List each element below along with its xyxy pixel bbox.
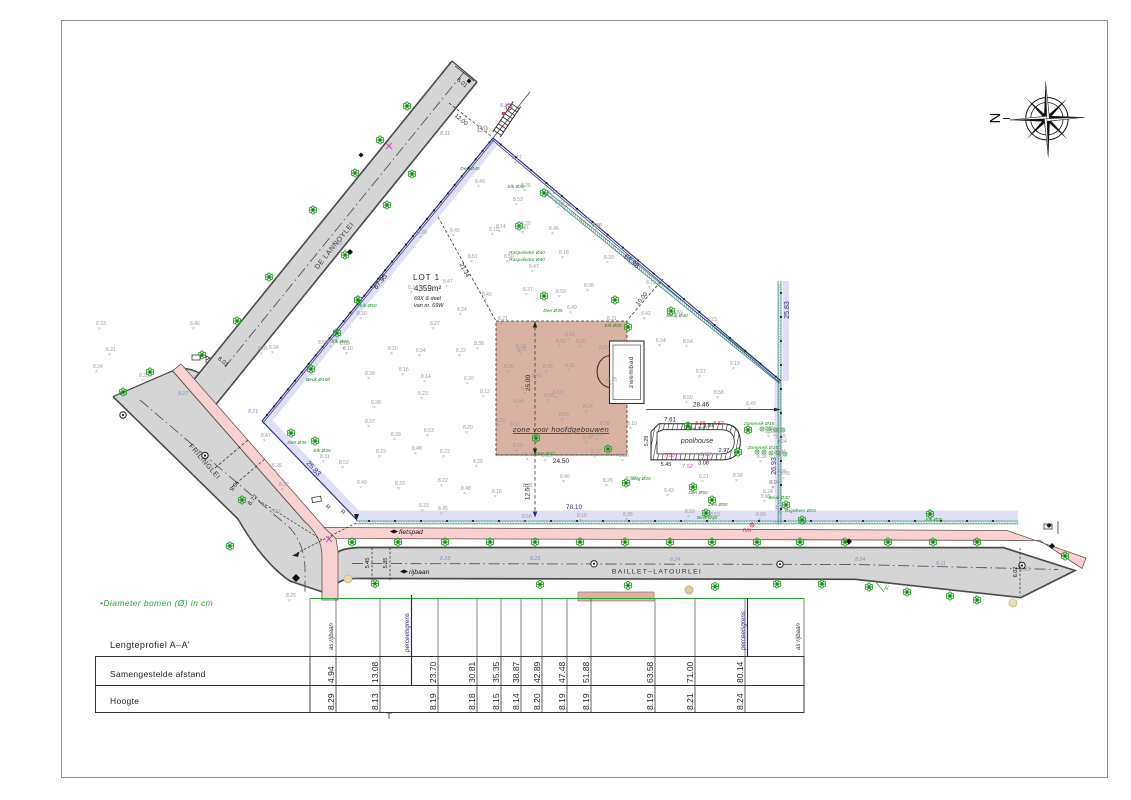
svg-text:42.89: 42.89: [532, 661, 542, 683]
svg-text:×: ×: [544, 458, 547, 464]
svg-text:×: ×: [390, 351, 393, 357]
svg-text:×: ×: [621, 458, 624, 464]
svg-text:×: ×: [329, 344, 332, 350]
svg-text:×: ×: [561, 255, 564, 261]
svg-text:×: ×: [452, 233, 455, 239]
svg-text:8.15: 8.15: [491, 693, 501, 710]
svg-text:Den Ø35: Den Ø35: [287, 440, 307, 446]
svg-text:×: ×: [491, 232, 494, 238]
svg-text:25.83: 25.83: [784, 301, 791, 319]
svg-text:×: ×: [550, 195, 553, 201]
svg-text:×: ×: [748, 406, 751, 412]
svg-text:×: ×: [582, 222, 585, 228]
svg-text:×: ×: [563, 208, 566, 214]
svg-text:8.22: 8.22: [332, 241, 342, 247]
svg-text:47.48: 47.48: [557, 661, 567, 683]
svg-text:hm: hm: [743, 528, 751, 534]
svg-text:as rijbaan: as rijbaan: [328, 623, 335, 650]
svg-text:×: ×: [569, 310, 572, 316]
svg-text:×: ×: [698, 374, 701, 380]
svg-text:×: ×: [767, 434, 770, 440]
svg-text:×: ×: [567, 368, 570, 374]
svg-text:2.97: 2.97: [719, 448, 730, 454]
svg-text:×: ×: [367, 376, 370, 382]
svg-text:poolhouse: poolhouse: [680, 438, 713, 445]
svg-text:78.10: 78.10: [566, 504, 583, 511]
svg-text:8.11: 8.11: [936, 561, 946, 567]
svg-text:35.35: 35.35: [491, 661, 501, 683]
svg-text:×: ×: [605, 483, 608, 489]
svg-text:N: N: [986, 113, 1003, 124]
svg-text:24.50: 24.50: [553, 458, 570, 465]
svg-text:Beuk Ø30: Beuk Ø30: [768, 495, 790, 501]
svg-text:×: ×: [609, 382, 612, 388]
svg-text:×: ×: [500, 321, 503, 327]
svg-text:×: ×: [458, 353, 461, 359]
svg-text:×: ×: [765, 494, 768, 500]
svg-text:×: ×: [593, 454, 596, 460]
svg-text:×: ×: [477, 184, 480, 190]
svg-text:×: ×: [561, 417, 564, 423]
svg-text:×: ×: [442, 454, 445, 460]
svg-text:4.94: 4.94: [326, 666, 336, 683]
svg-text:21.34: 21.34: [458, 262, 471, 279]
svg-text:5.29: 5.29: [644, 436, 650, 447]
svg-text:×: ×: [779, 474, 782, 480]
svg-text:×: ×: [414, 451, 417, 457]
svg-text:×: ×: [525, 292, 528, 298]
svg-text:×: ×: [494, 494, 497, 500]
svg-text:×: ×: [648, 285, 651, 291]
svg-text:×: ×: [523, 226, 526, 232]
svg-text:Den Ø50: Den Ø50: [688, 490, 708, 496]
svg-text:×: ×: [498, 229, 501, 235]
svg-text:×: ×: [518, 349, 521, 355]
svg-text:×: ×: [419, 235, 422, 241]
svg-text:13.08: 13.08: [370, 661, 380, 683]
svg-text:×: ×: [557, 205, 560, 211]
svg-text:38.87: 38.87: [511, 661, 521, 683]
svg-text:×: ×: [567, 337, 570, 343]
svg-text:×: ×: [778, 510, 781, 516]
svg-text:×: ×: [526, 457, 529, 463]
svg-text:×: ×: [95, 369, 98, 375]
svg-text:Raspvlinder Ø40: Raspvlinder Ø40: [509, 250, 545, 256]
svg-text:×: ×: [709, 322, 712, 328]
svg-text:×: ×: [373, 405, 376, 411]
svg-text:×: ×: [551, 231, 554, 237]
svg-text:×: ×: [712, 517, 715, 523]
svg-text:×: ×: [628, 481, 631, 487]
svg-text:8.19: 8.19: [557, 693, 567, 710]
svg-text:×: ×: [565, 432, 568, 438]
svg-text:×: ×: [525, 488, 528, 494]
svg-text:×: ×: [585, 440, 588, 446]
svg-text:71.00: 71.00: [685, 661, 695, 683]
svg-text:Samengestelde afstand: Samengestelde afstand: [110, 669, 206, 679]
svg-text:×: ×: [643, 316, 646, 322]
svg-text:×: ×: [601, 350, 604, 356]
svg-text:×: ×: [782, 476, 785, 482]
svg-text:×: ×: [578, 344, 581, 350]
svg-text:×: ×: [625, 517, 628, 523]
svg-text:×: ×: [98, 326, 101, 332]
svg-text:×: ×: [465, 430, 468, 436]
svg-text:R: R: [339, 509, 347, 517]
svg-text:×: ×: [606, 260, 609, 266]
svg-text:8.31: 8.31: [440, 131, 450, 137]
svg-text:×: ×: [410, 290, 413, 296]
svg-text:×: ×: [558, 344, 561, 350]
svg-text:7.61: 7.61: [664, 418, 676, 424]
svg-text:×: ×: [341, 465, 344, 471]
svg-text:×: ×: [531, 269, 534, 275]
svg-text:×: ×: [687, 514, 690, 520]
svg-text:×: ×: [108, 352, 111, 358]
svg-text:80.14: 80.14: [735, 661, 745, 683]
svg-text:B9: B9: [477, 124, 488, 134]
svg-text:LOT 1: LOT 1: [413, 273, 440, 282]
svg-text:×: ×: [562, 479, 565, 485]
svg-text:7.50: 7.50: [664, 453, 676, 459]
svg-text:Beuk Ø100: Beuk Ø100: [306, 377, 330, 383]
svg-text:×: ×: [423, 379, 426, 385]
svg-text:×: ×: [475, 464, 478, 470]
svg-text:8.21: 8.21: [248, 409, 258, 415]
svg-text:×: ×: [440, 483, 443, 489]
svg-text:×: ×: [263, 438, 266, 444]
svg-text:8.29: 8.29: [326, 693, 336, 710]
svg-text:×: ×: [778, 439, 781, 445]
svg-text:×: ×: [281, 487, 284, 493]
svg-text:28.46: 28.46: [693, 402, 710, 409]
svg-text:Eik Ø35: Eik Ø35: [925, 517, 942, 523]
svg-text:51.88: 51.88: [581, 661, 591, 683]
svg-text:×: ×: [397, 486, 400, 492]
svg-text:8.20: 8.20: [532, 693, 542, 710]
svg-text:×: ×: [658, 343, 661, 349]
svg-text:×: ×: [345, 351, 348, 357]
svg-text:8.19: 8.19: [581, 693, 591, 710]
svg-text:as rijbaan: as rijbaan: [795, 623, 802, 650]
svg-text:van nr. 69W: van nr. 69W: [414, 303, 444, 309]
svg-text:BAILLET–LATOURLEI: BAILLET–LATOURLEI: [612, 569, 702, 576]
svg-text:8.52: 8.52: [713, 421, 724, 427]
svg-text:5.45: 5.45: [661, 462, 672, 468]
svg-text:×: ×: [523, 188, 526, 194]
svg-text:8.21: 8.21: [685, 693, 695, 710]
svg-text:×: ×: [192, 326, 195, 332]
svg-text:8.24: 8.24: [855, 557, 865, 563]
svg-text:×: ×: [273, 514, 276, 520]
svg-text:12.00: 12.00: [453, 113, 469, 128]
svg-text:×: ×: [359, 316, 362, 322]
svg-text:×: ×: [602, 426, 605, 432]
svg-text:Den Ø50: Den Ø50: [708, 502, 728, 508]
svg-text:×: ×: [701, 479, 704, 485]
svg-text:×: ×: [675, 315, 678, 321]
svg-text:rijbaan: rijbaan: [409, 569, 430, 576]
svg-text:Hoogte: Hoogte: [110, 696, 139, 706]
svg-text:×: ×: [484, 297, 487, 303]
svg-text:×: ×: [421, 508, 424, 514]
svg-text:8.19: 8.19: [428, 693, 438, 710]
svg-text:×: ×: [628, 261, 631, 267]
svg-text:×: ×: [585, 409, 588, 415]
svg-text:×: ×: [776, 455, 779, 461]
svg-text:×: ×: [426, 433, 429, 439]
svg-text:8.24: 8.24: [735, 693, 745, 710]
svg-text:×: ×: [418, 353, 421, 359]
svg-text:×: ×: [459, 312, 462, 318]
svg-text:×: ×: [629, 426, 632, 432]
svg-text:8.24: 8.24: [670, 557, 680, 563]
svg-text:×: ×: [523, 391, 526, 397]
svg-text:×: ×: [497, 423, 500, 429]
svg-text:×: ×: [514, 160, 517, 166]
svg-text:×: ×: [476, 346, 479, 352]
svg-text:8.11: 8.11: [500, 103, 510, 109]
svg-text:×: ×: [546, 398, 549, 404]
svg-text:Eik Ø50: Eik Ø50: [359, 303, 376, 309]
svg-text:×: ×: [515, 202, 518, 208]
svg-text:×: ×: [393, 437, 396, 443]
svg-text:zwembad: zwembad: [628, 356, 635, 388]
svg-text:4359m²: 4359m²: [414, 284, 441, 293]
svg-text:1.93: 1.93: [700, 452, 712, 458]
svg-text:×: ×: [515, 448, 518, 454]
svg-text:×: ×: [506, 369, 509, 375]
svg-text:×: ×: [579, 518, 582, 524]
svg-text:×: ×: [322, 459, 325, 465]
svg-text:A’: A’: [883, 586, 890, 592]
svg-text:Den Ø40: Den Ø40: [460, 166, 480, 172]
svg-text:×: ×: [594, 228, 597, 234]
svg-text:×: ×: [558, 294, 561, 300]
svg-text:×: ×: [378, 454, 381, 460]
svg-text:×: ×: [758, 517, 761, 523]
svg-text:69X & deel: 69X & deel: [414, 296, 442, 302]
svg-text:63.58: 63.58: [645, 661, 655, 683]
svg-text:8.13: 8.13: [370, 693, 380, 710]
svg-text:5.45: 5.45: [365, 558, 371, 569]
svg-text:30.81: 30.81: [467, 661, 477, 683]
svg-text:7.52: 7.52: [682, 464, 693, 470]
svg-text:×: ×: [506, 259, 509, 265]
svg-text:×: ×: [759, 459, 762, 465]
svg-text:×: ×: [320, 345, 323, 351]
svg-text:perceelsgrens: perceelsgrens: [404, 613, 411, 653]
svg-text:×: ×: [545, 369, 548, 375]
svg-text:×: ×: [260, 351, 263, 357]
svg-text:8.19: 8.19: [645, 693, 655, 710]
svg-text:×: ×: [432, 326, 435, 332]
svg-text:×: ×: [440, 511, 443, 517]
svg-text:Eik Ø35: Eik Ø35: [604, 323, 621, 329]
svg-text:×: ×: [463, 491, 466, 497]
svg-text:R: R: [324, 504, 332, 512]
svg-text:×: ×: [666, 493, 669, 499]
svg-text:8.55: 8.55: [695, 421, 707, 427]
svg-text:×: ×: [466, 381, 469, 387]
svg-text:8.27: 8.27: [178, 391, 189, 397]
svg-text:×: ×: [732, 366, 735, 372]
svg-text:×: ×: [482, 394, 485, 400]
svg-text:fietspad: fietspad: [399, 529, 423, 536]
svg-text:•Diameter bomen (Ø) in cm: •Diameter bomen (Ø) in cm: [100, 598, 213, 608]
svg-text:23.70: 23.70: [428, 661, 438, 683]
svg-text:×: ×: [586, 288, 589, 294]
svg-text:×: ×: [445, 284, 448, 290]
svg-text:Den Ø35: Den Ø35: [543, 308, 563, 314]
svg-text:×: ×: [512, 427, 515, 433]
svg-text:×: ×: [274, 468, 277, 474]
svg-text:Lengteprofiel A–A': Lengteprofiel A–A': [110, 640, 190, 650]
svg-text:×: ×: [401, 372, 404, 378]
svg-text:8.22: 8.22: [1020, 567, 1030, 573]
svg-text:×: ×: [470, 259, 473, 265]
svg-text:perceelsgrens: perceelsgrens: [740, 611, 747, 651]
svg-text:Raspvlinder Ø40: Raspvlinder Ø40: [509, 257, 545, 263]
svg-text:6.02: 6.02: [1013, 567, 1019, 578]
svg-text:8.23: 8.23: [530, 556, 540, 562]
svg-text:8.14: 8.14: [511, 693, 521, 710]
svg-text:×: ×: [595, 437, 598, 443]
svg-text:×: ×: [609, 321, 612, 327]
svg-text:5.85: 5.85: [383, 558, 389, 569]
svg-text:×: ×: [524, 519, 527, 525]
svg-text:×: ×: [685, 344, 688, 350]
svg-text:×: ×: [367, 424, 370, 430]
svg-text:×: ×: [359, 485, 362, 491]
svg-text:×: ×: [516, 404, 519, 410]
svg-text:×: ×: [735, 478, 738, 484]
svg-text:×: ×: [420, 396, 423, 402]
svg-text:×: ×: [716, 395, 719, 401]
svg-text:×: ×: [141, 378, 144, 384]
svg-text:×: ×: [685, 400, 688, 406]
svg-text:×: ×: [534, 378, 537, 384]
svg-text:8.23: 8.23: [440, 556, 450, 562]
svg-text:3.08: 3.08: [698, 461, 709, 467]
svg-text:Vogelkers Ø15: Vogelkers Ø15: [784, 508, 816, 514]
svg-text:25.83: 25.83: [305, 460, 322, 478]
svg-text:×: ×: [288, 598, 291, 604]
svg-text:10.00: 10.00: [635, 291, 650, 307]
svg-text:×: ×: [271, 350, 274, 356]
svg-text:×: ×: [555, 395, 558, 401]
svg-text:8.18: 8.18: [467, 693, 477, 710]
